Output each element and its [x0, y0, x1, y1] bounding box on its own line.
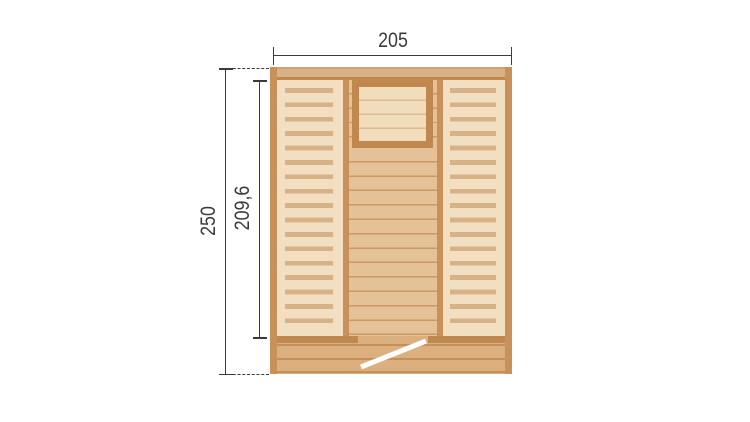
wall-height-dimension-tick-top — [253, 80, 267, 81]
door-swing-line — [270, 67, 512, 374]
wall-height-dimension-line — [259, 81, 260, 338]
shed-elevation-drawing — [270, 67, 512, 374]
wall-height-dimension-label: 209,6 — [233, 174, 253, 242]
width-dimension-label: 205 — [351, 31, 436, 51]
extension-dash-top — [228, 68, 269, 69]
width-dimension-line — [274, 55, 512, 56]
total-height-dimension-line — [225, 69, 226, 375]
width-dimension-tick-right — [511, 47, 512, 65]
drawing-canvas: 205 250 209,6 — [0, 0, 750, 422]
wall-height-dimension-tick-bottom — [253, 337, 267, 338]
width-dimension-tick-left — [273, 47, 274, 65]
extension-dash-bottom — [228, 374, 269, 375]
total-height-dimension-label: 250 — [199, 187, 219, 255]
